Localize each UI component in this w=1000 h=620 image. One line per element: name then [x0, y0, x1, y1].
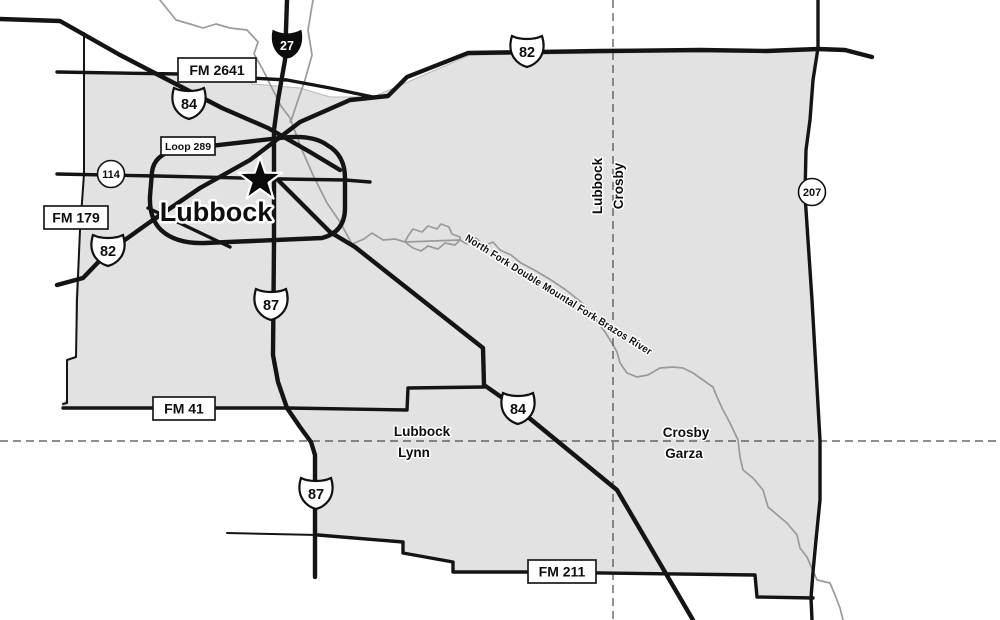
us-84-southeast-label: 84	[510, 402, 526, 418]
us-87-central-label: 87	[263, 298, 279, 314]
state-207-shield-icon: 207	[799, 179, 826, 206]
fm-211-box: FM 211	[528, 560, 596, 583]
state-114-label: 114	[102, 169, 121, 181]
county-label-lynn: Lynn	[398, 445, 430, 460]
us-87-south-label: 87	[308, 487, 324, 503]
map-canvas: Lubbock North Fork Double Mountal Fork B…	[0, 0, 1000, 620]
county-label-lubbock-south: Lubbock	[394, 424, 451, 439]
state-207-label: 207	[803, 187, 821, 199]
study-area-region	[63, 50, 820, 598]
road-west-stub	[227, 533, 318, 535]
fm-41-box: FM 41	[153, 397, 215, 420]
us-84-northwest-label: 84	[181, 97, 197, 113]
county-label-crosby-south: Crosby	[663, 425, 710, 440]
lubbock-county-map: Lubbock North Fork Double Mountal Fork B…	[0, 0, 1000, 620]
fm-179-box: FM 179	[44, 206, 108, 229]
state-114-shield-icon: 114	[98, 161, 125, 188]
county-label-garza: Garza	[665, 446, 703, 461]
fm-2641-label: FM 2641	[189, 62, 244, 78]
interstate-27-label: 27	[280, 39, 294, 53]
us-82-north-label: 82	[519, 45, 535, 61]
fm-179-label: FM 179	[52, 210, 100, 226]
us-82-southwest-label: 82	[100, 244, 116, 260]
loop-289-box: Loop 289	[161, 137, 215, 155]
county-label-crosby-vertical: Crosby	[611, 162, 626, 209]
interstate-27-shield-icon: 27	[272, 31, 301, 59]
fm-211-label: FM 211	[539, 564, 586, 580]
county-label-lubbock-vertical: Lubbock	[590, 157, 605, 214]
loop-289-label: Loop 289	[165, 141, 211, 153]
city-label: Lubbock	[160, 197, 273, 227]
fm-41-label: FM 41	[164, 401, 204, 417]
fm-2641-box: FM 2641	[178, 58, 256, 82]
